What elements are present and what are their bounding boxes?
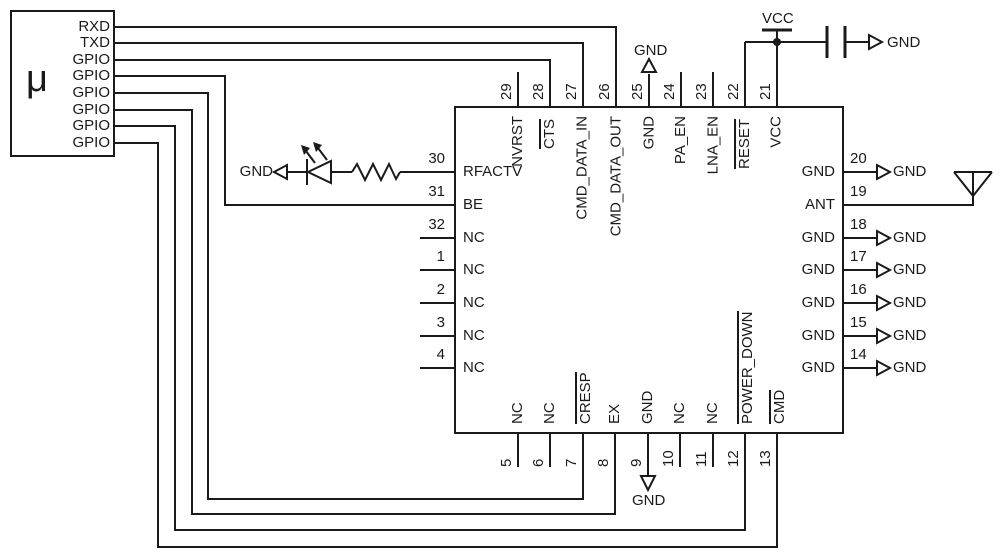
ic-pin-label-cresp: CRESP	[575, 372, 593, 424]
gnd-arrow-right-icon	[877, 263, 890, 277]
capacitor	[827, 26, 882, 58]
ic-pin-label-gnd: GND	[802, 328, 835, 343]
pin-number-4: 4	[437, 347, 445, 362]
vcc-net-label: VCC	[762, 11, 794, 26]
led-emission-line-2	[318, 148, 327, 160]
mcu-pin-label-rxd: RXD	[78, 19, 110, 34]
pin-number-8: 8	[596, 459, 611, 467]
mcu-pin-label-gpio: GPIO	[72, 135, 110, 150]
pin-number-30: 30	[428, 151, 445, 166]
ic-pin-label-nc: NC	[510, 402, 525, 424]
schematic-page: μ RXD TXD GPIO GPIO GPIO GPIO GPIO GPIO …	[0, 0, 1006, 560]
pin-number-29: 29	[499, 83, 514, 100]
ic-pin-label-nc: NC	[705, 402, 720, 424]
ic-pin-label-cmd-data-out: CMD_DATA_OUT	[608, 116, 623, 236]
gnd-net-label: GND	[893, 328, 926, 343]
pin-number-17: 17	[850, 249, 867, 264]
gnd-arrow-right-icon	[877, 231, 890, 245]
mcu-pin-label-gpio: GPIO	[72, 68, 110, 83]
led-icon	[301, 142, 331, 185]
resistor-icon	[352, 164, 400, 180]
pin-number-15: 15	[850, 315, 867, 330]
pin-number-32: 32	[428, 217, 445, 232]
gnd-arrow-right-icon	[869, 35, 882, 49]
pin-number-6: 6	[531, 459, 546, 467]
ic-pin-label-cmd-data-in: CMD_DATA_IN	[575, 116, 590, 220]
ic-pin-label-reset: RESET	[734, 119, 752, 169]
ic-pin-label-gnd: GND	[802, 295, 835, 310]
ic-pin-label-lna-en: LNA_EN	[705, 116, 720, 174]
pin-number-24: 24	[662, 83, 677, 100]
ic-pin-label-gnd: GND	[641, 116, 656, 149]
gnd-net-label: GND	[887, 35, 920, 50]
mcu-pin-label-gpio: GPIO	[72, 118, 110, 133]
ic-pin-label-power-down: POWER_DOWN	[737, 312, 755, 425]
ic-pin-label-nc: NC	[463, 262, 485, 277]
mcu-pin-label-gpio: GPIO	[72, 85, 110, 100]
antenna-left-leg	[954, 172, 973, 196]
gnd-arrow-up-icon	[642, 59, 656, 72]
gnd-arrow-right-icon	[877, 329, 890, 343]
mcu-wires	[114, 27, 777, 547]
pin-number-12: 12	[726, 450, 741, 467]
ic-pin-label-cts: CTS	[539, 119, 557, 149]
wire-gpio-cmd	[114, 143, 777, 547]
pin-number-16: 16	[850, 282, 867, 297]
pin-number-9: 9	[629, 459, 644, 467]
gnd-net-label: GND	[893, 164, 926, 179]
gnd-arrow-right-icon	[877, 296, 890, 310]
pin-number-10: 10	[661, 450, 676, 467]
wire-gpio-be	[114, 76, 455, 205]
ic-pin-label-cmd: CMD	[769, 390, 787, 424]
pin-number-11: 11	[694, 451, 709, 467]
pin-number-31: 31	[428, 184, 445, 199]
led-triangle	[308, 161, 331, 183]
pin-number-5: 5	[499, 459, 514, 467]
ic-pin-label-nc: NC	[463, 295, 485, 310]
ic-pin-label-pa-en: PA_EN	[673, 116, 688, 164]
gnd-net-label: GND	[893, 295, 926, 310]
ic-pin-label-nc: NC	[463, 230, 485, 245]
gnd-net-label: GND	[893, 230, 926, 245]
gnd-net-label: GND	[634, 43, 667, 58]
pin-number-3: 3	[437, 315, 445, 330]
ic-pin-label-rfactv: RFACTV	[463, 164, 522, 179]
ic-pin-label-nc: NC	[463, 360, 485, 375]
mcu-pin-label-gpio: GPIO	[72, 52, 110, 67]
ic-pin-label-gnd: GND	[802, 164, 835, 179]
pin-number-19: 19	[850, 184, 867, 199]
junction-dot	[773, 38, 781, 46]
ic-pin-label-nc: NC	[672, 402, 687, 424]
ic-pin-label-ex: EX	[607, 404, 622, 424]
antenna-right-leg	[973, 172, 992, 196]
ic-pin-label-vcc: VCC	[769, 116, 784, 148]
ic-pin-label-nc: NC	[542, 402, 557, 424]
pin-number-2: 2	[437, 282, 445, 297]
pin-number-18: 18	[850, 217, 867, 232]
pin-number-14: 14	[850, 347, 867, 362]
gnd-arrow-right-icon	[877, 361, 890, 375]
gnd-arrow-left-icon	[274, 165, 287, 179]
ic-pin-label-ant: ANT	[805, 197, 835, 212]
gnd-arrow-down-icon	[641, 476, 655, 490]
ic-pin-label-nc: NC	[463, 328, 485, 343]
pin-number-22: 22	[726, 83, 741, 100]
wire-gpio-ex	[114, 110, 615, 514]
vcc-rail	[745, 30, 827, 46]
gnd-net-label: GND	[893, 360, 926, 375]
pin-number-1: 1	[437, 249, 445, 264]
gnd-arrow-right-icon	[877, 165, 890, 179]
pin-number-28: 28	[531, 83, 546, 100]
ic-pin-label-nvrst: NVRST	[510, 116, 525, 167]
pin-number-26: 26	[597, 83, 612, 100]
pin-number-7: 7	[564, 459, 579, 467]
pin-number-20: 20	[850, 151, 867, 166]
mcu-symbol: μ	[26, 60, 48, 98]
mcu-pin-label-gpio: GPIO	[72, 102, 110, 117]
wire-gpio-cts	[114, 60, 550, 107]
gnd-net-label: GND	[240, 164, 273, 179]
ic-pin-label-gnd: GND	[802, 230, 835, 245]
pin-number-23: 23	[694, 83, 709, 100]
gnd-net-label: GND	[632, 493, 665, 508]
mcu-pin-label-txd: TXD	[80, 35, 110, 50]
pin-number-25: 25	[630, 83, 645, 100]
ic-pin-label-gnd: GND	[802, 262, 835, 277]
pin-number-27: 27	[564, 83, 579, 100]
ic-pin-label-gnd: GND	[802, 360, 835, 375]
pin-number-21: 21	[758, 83, 773, 100]
ic-pin-label-be: BE	[463, 197, 483, 212]
pin-number-13: 13	[758, 450, 773, 467]
gnd-net-label: GND	[893, 262, 926, 277]
ic-pin-label-gnd: GND	[640, 391, 655, 424]
